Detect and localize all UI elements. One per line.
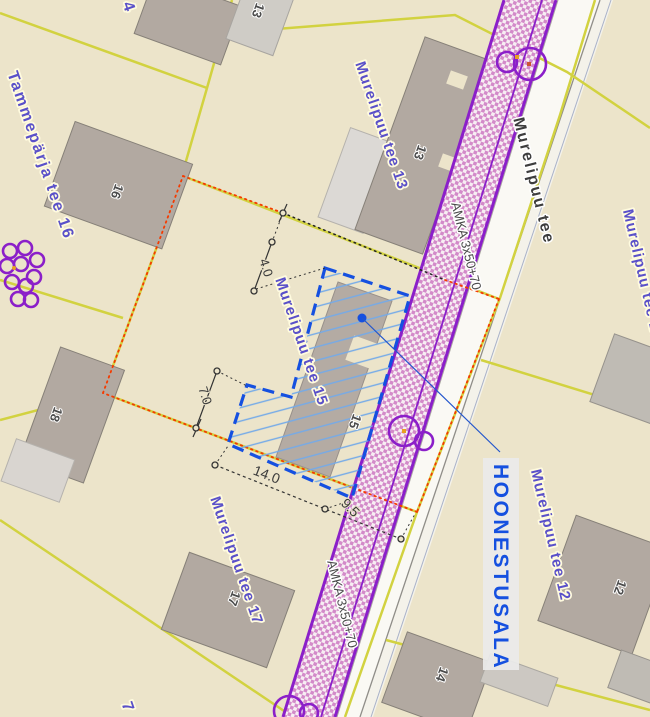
map-viewport[interactable]: 4.0 7.0 14.0 9.5 HOON	[0, 0, 650, 717]
plan-map: 4.0 7.0 14.0 9.5 HOON	[0, 0, 650, 717]
building-area-label: HOONESTUSALA	[489, 464, 512, 670]
building-area-callout: HOONESTUSALA	[483, 458, 519, 670]
